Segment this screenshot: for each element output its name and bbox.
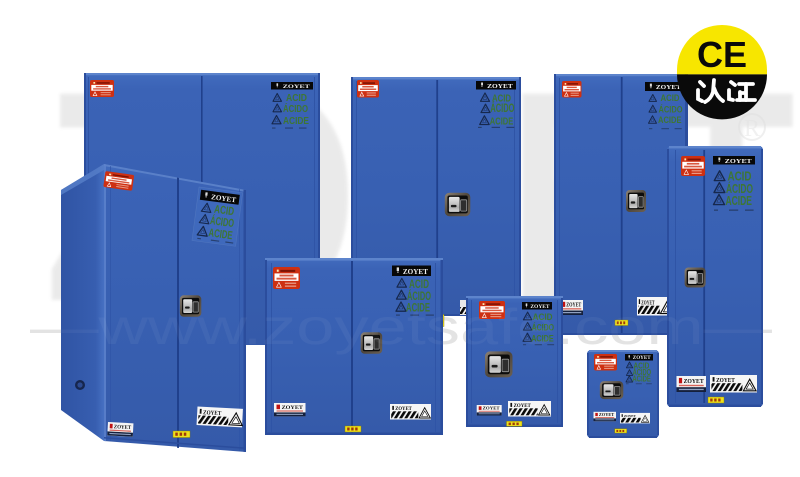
svg-text:—www.zoyetsafe.com—: —www.zoyetsafe.com— [30,299,772,355]
svg-text:R: R [744,116,760,142]
svg-text:ZOYET: ZOYET [716,378,735,384]
svg-text:ACID: ACID [409,279,429,291]
svg-text:ZOYET: ZOYET [483,406,500,411]
svg-text:ZOYET: ZOYET [684,378,705,385]
svg-text:ACID: ACID [661,93,680,104]
svg-text:ZOYET: ZOYET [487,84,513,90]
svg-text:ACIDE: ACIDE [283,116,309,127]
svg-text:ACIDE: ACIDE [658,115,682,126]
svg-text:ZOYET: ZOYET [656,84,682,91]
svg-text:ZOYET: ZOYET [725,159,752,165]
svg-text:CE: CE [697,34,747,75]
svg-text:ACIDE: ACIDE [632,374,651,383]
svg-text:ZOYET: ZOYET [624,414,637,418]
svg-text:ZOYET: ZOYET [599,413,615,417]
svg-text:ÁCIDO: ÁCIDO [490,102,514,115]
svg-text:ÁCIDO: ÁCIDO [659,104,683,115]
svg-text:ZOYET: ZOYET [283,84,310,90]
svg-text:ACID: ACID [286,93,307,104]
svg-text:ACIDE: ACIDE [490,115,514,127]
svg-text:ZOYET: ZOYET [403,267,428,276]
svg-text:ÁCIDO: ÁCIDO [283,102,308,115]
svg-text:ACIDE: ACIDE [726,194,753,208]
svg-text:ZOYET: ZOYET [282,405,304,411]
